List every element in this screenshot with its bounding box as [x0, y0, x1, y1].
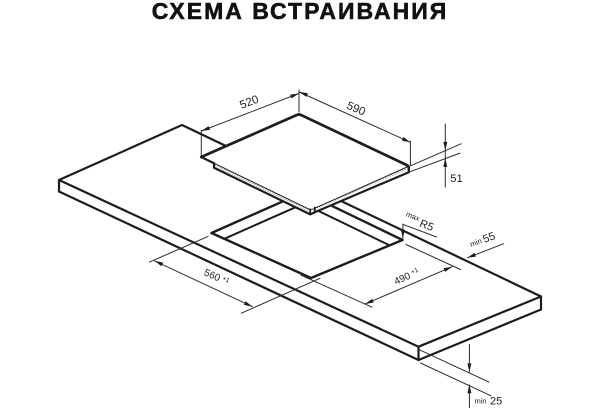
svg-text:590: 590 [345, 100, 367, 119]
svg-text:R5: R5 [418, 218, 435, 234]
svg-text:min: min [475, 397, 487, 406]
svg-text:25: 25 [490, 396, 502, 408]
svg-text:min: min [469, 236, 484, 249]
svg-text:51: 51 [450, 173, 462, 185]
svg-text:+1: +1 [221, 275, 231, 285]
svg-text:560: 560 [202, 267, 222, 284]
svg-text:55: 55 [481, 230, 497, 246]
svg-text:max: max [405, 210, 422, 224]
